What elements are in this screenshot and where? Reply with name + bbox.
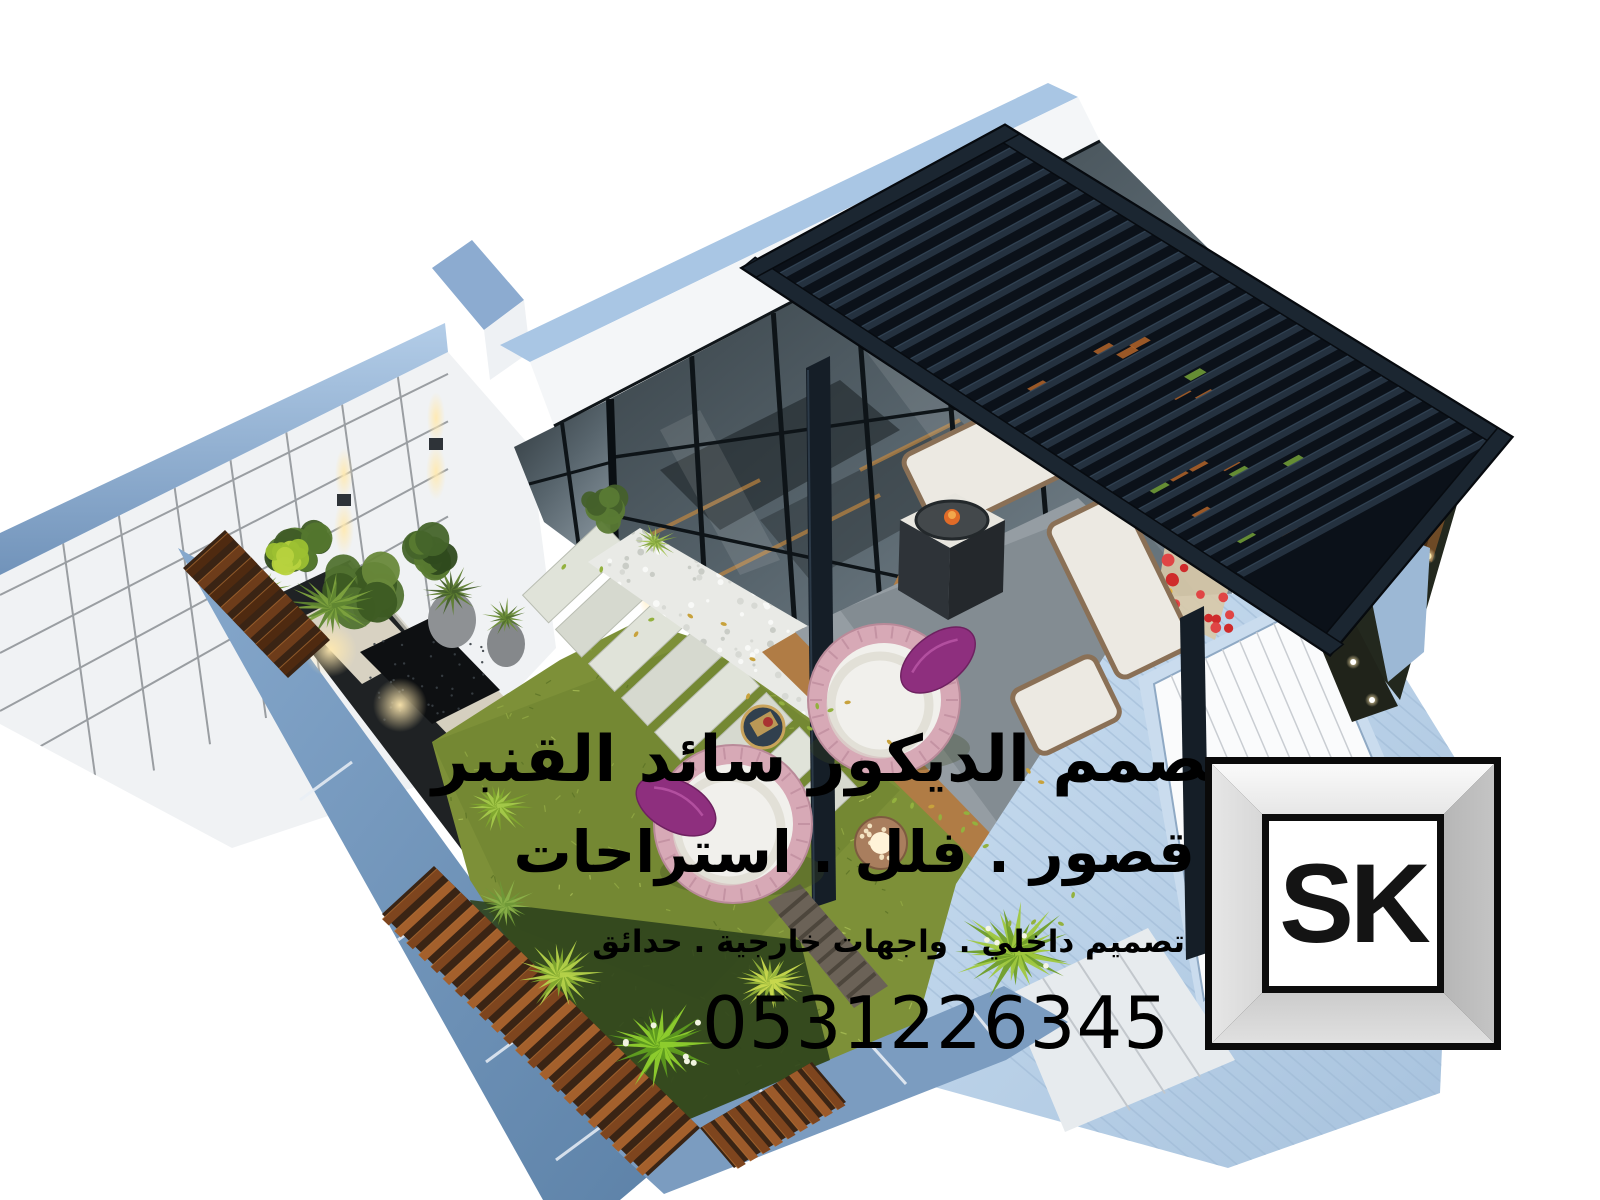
watermark-line-1: مصمم الديكور سائد القنبر [620, 727, 1248, 794]
watermark-phone-number: 0531226345 [702, 986, 1182, 1062]
watermark-line-2: قصور . فلل . استراحات [650, 822, 1195, 883]
sk-logo: SK [1205, 757, 1501, 1050]
watermark-line-3: تصميم داخلي . واجهات خارجية . حدائق [640, 926, 1185, 959]
sk-logo-monogram: SK [1262, 814, 1444, 993]
render-image: مصمم الديكور سائد القنبر قصور . فلل . اس… [0, 0, 1600, 1200]
sk-logo-frame: SK [1212, 764, 1494, 1043]
